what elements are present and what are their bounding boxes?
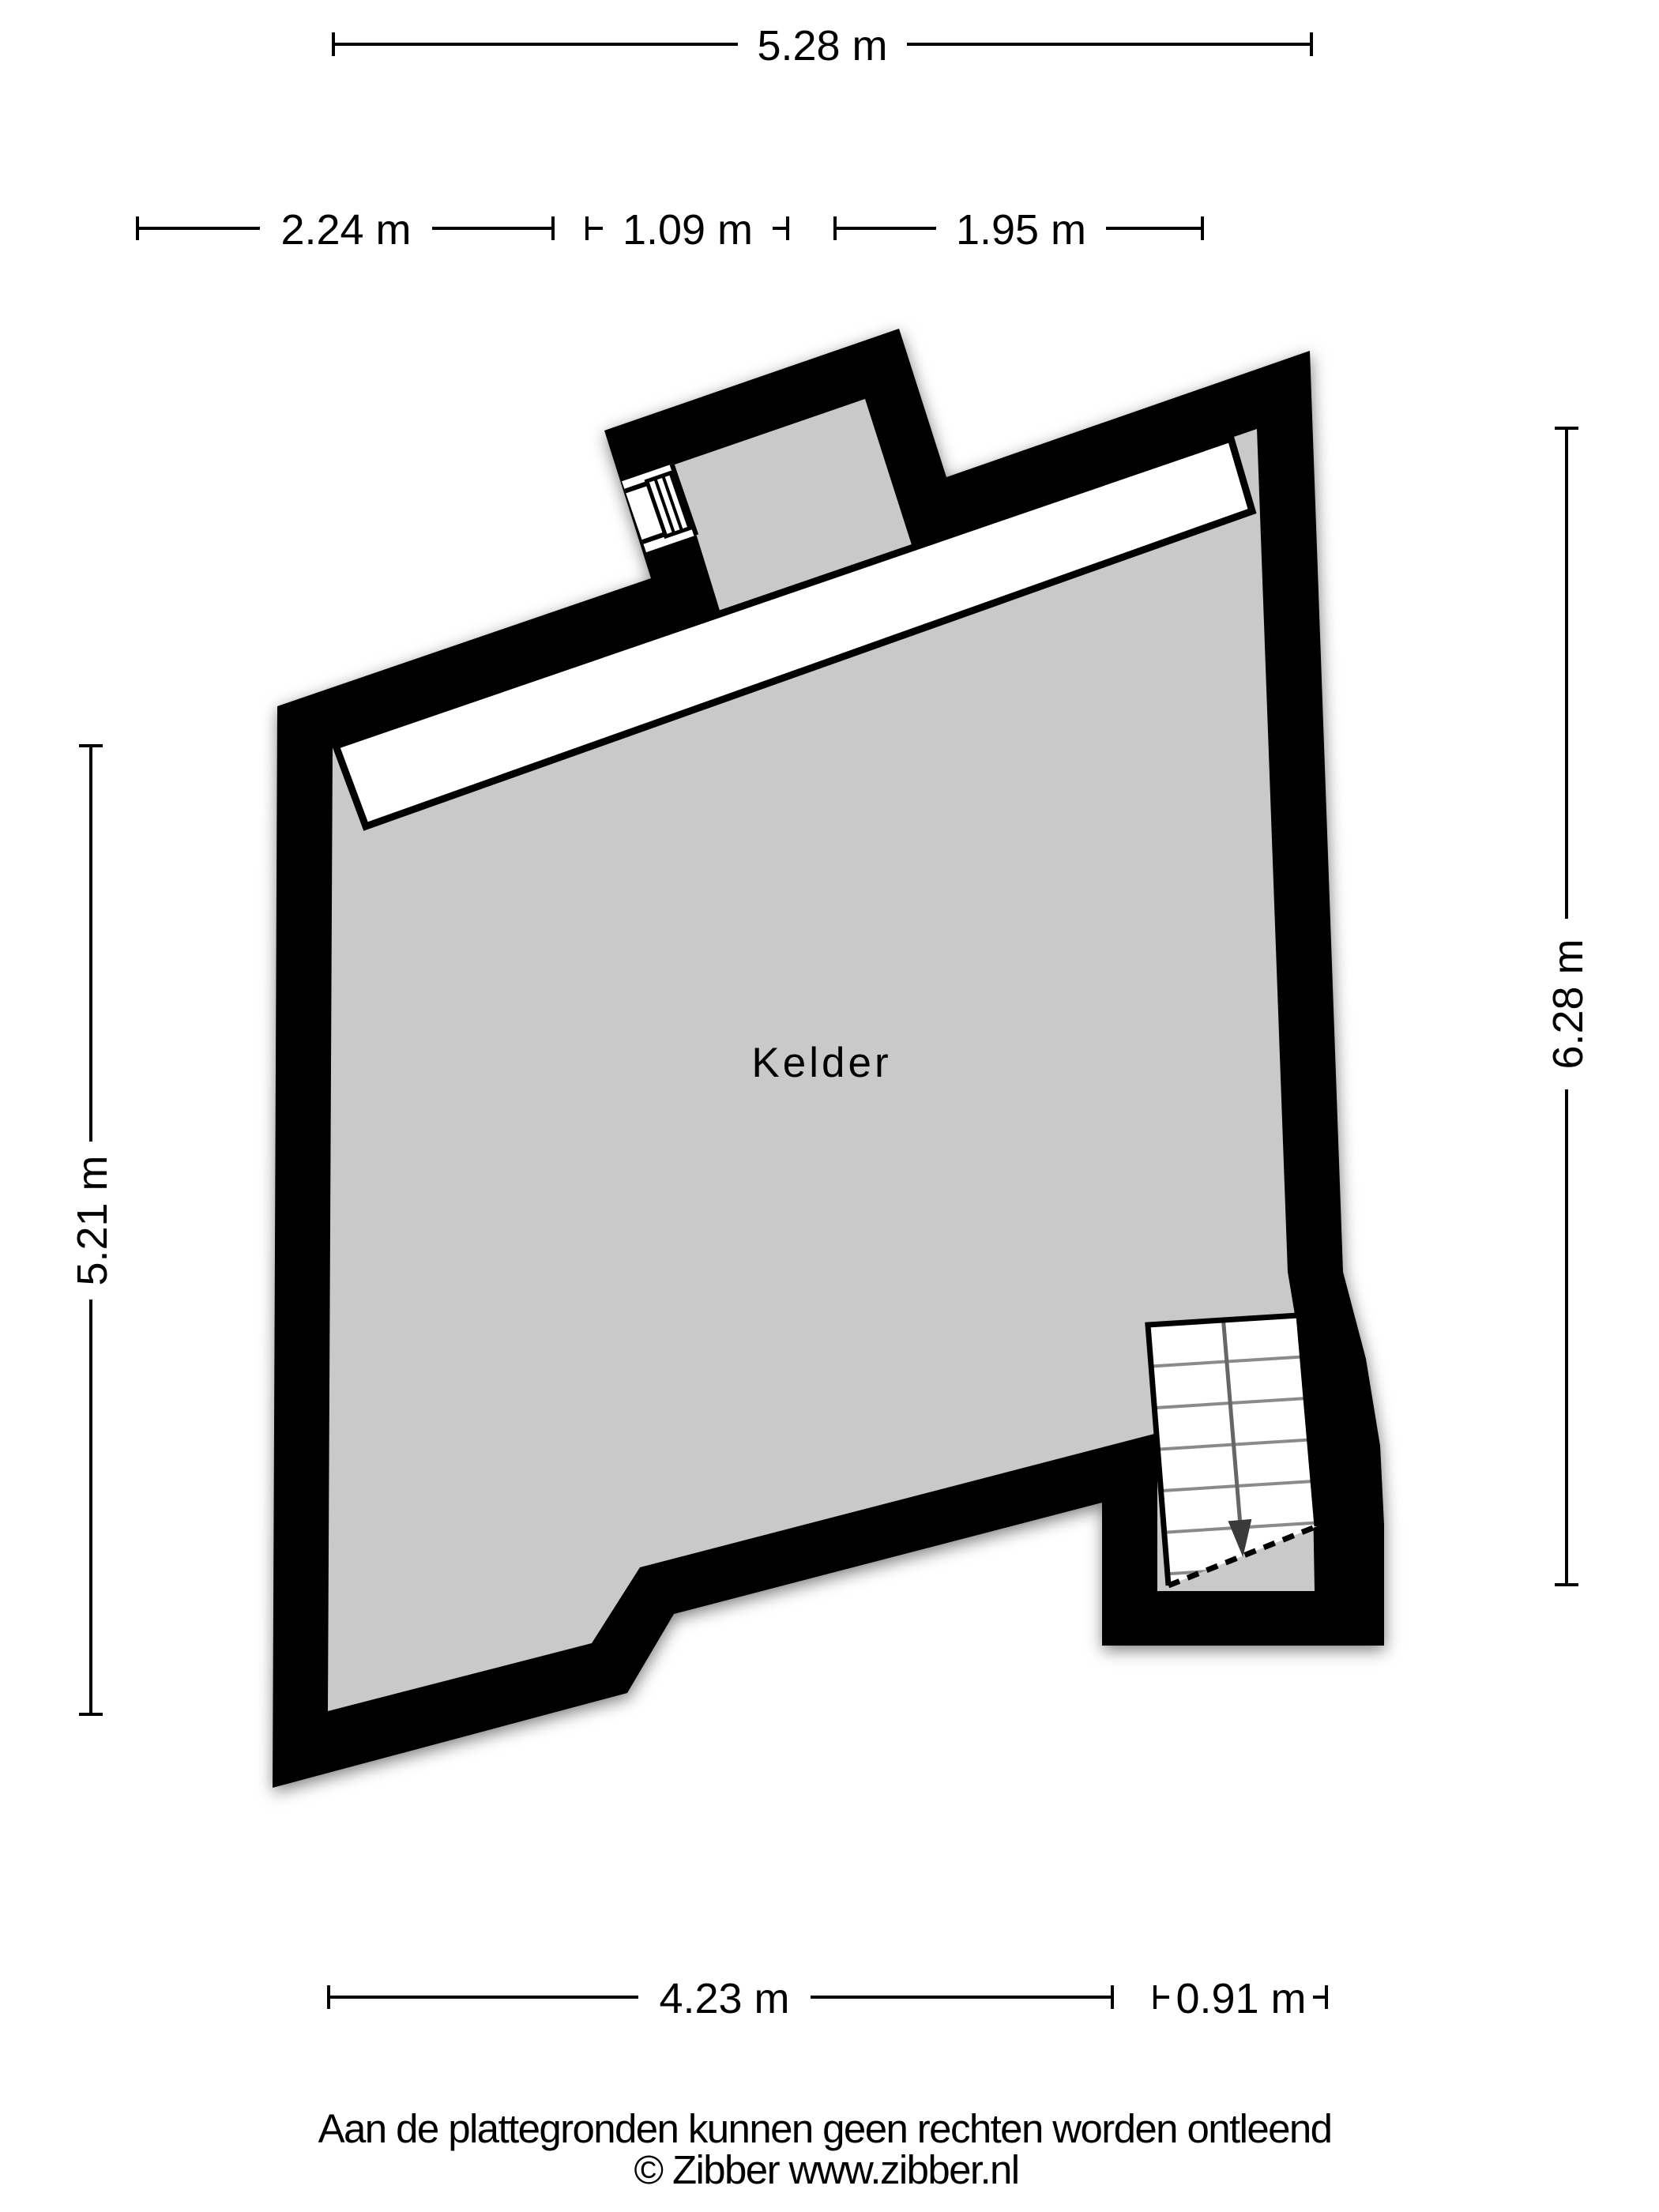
- svg-text:1.95 m: 1.95 m: [956, 206, 1086, 254]
- svg-text:4.23 m: 4.23 m: [659, 1975, 789, 2022]
- svg-text:6.28 m: 6.28 m: [1544, 939, 1592, 1069]
- svg-text:5.21 m: 5.21 m: [69, 1155, 116, 1285]
- svg-text:2.24 m: 2.24 m: [280, 206, 411, 254]
- svg-text:Aan de plattegronden kunnen ge: Aan de plattegronden kunnen geen rechten…: [318, 2106, 1332, 2151]
- svg-text:0.91 m: 0.91 m: [1176, 1975, 1306, 2022]
- svg-text:© Zibber www.zibber.nl: © Zibber www.zibber.nl: [634, 2147, 1018, 2192]
- svg-text:Kelder: Kelder: [751, 1040, 891, 1086]
- svg-text:1.09 m: 1.09 m: [623, 206, 753, 254]
- svg-text:5.28 m: 5.28 m: [757, 22, 887, 70]
